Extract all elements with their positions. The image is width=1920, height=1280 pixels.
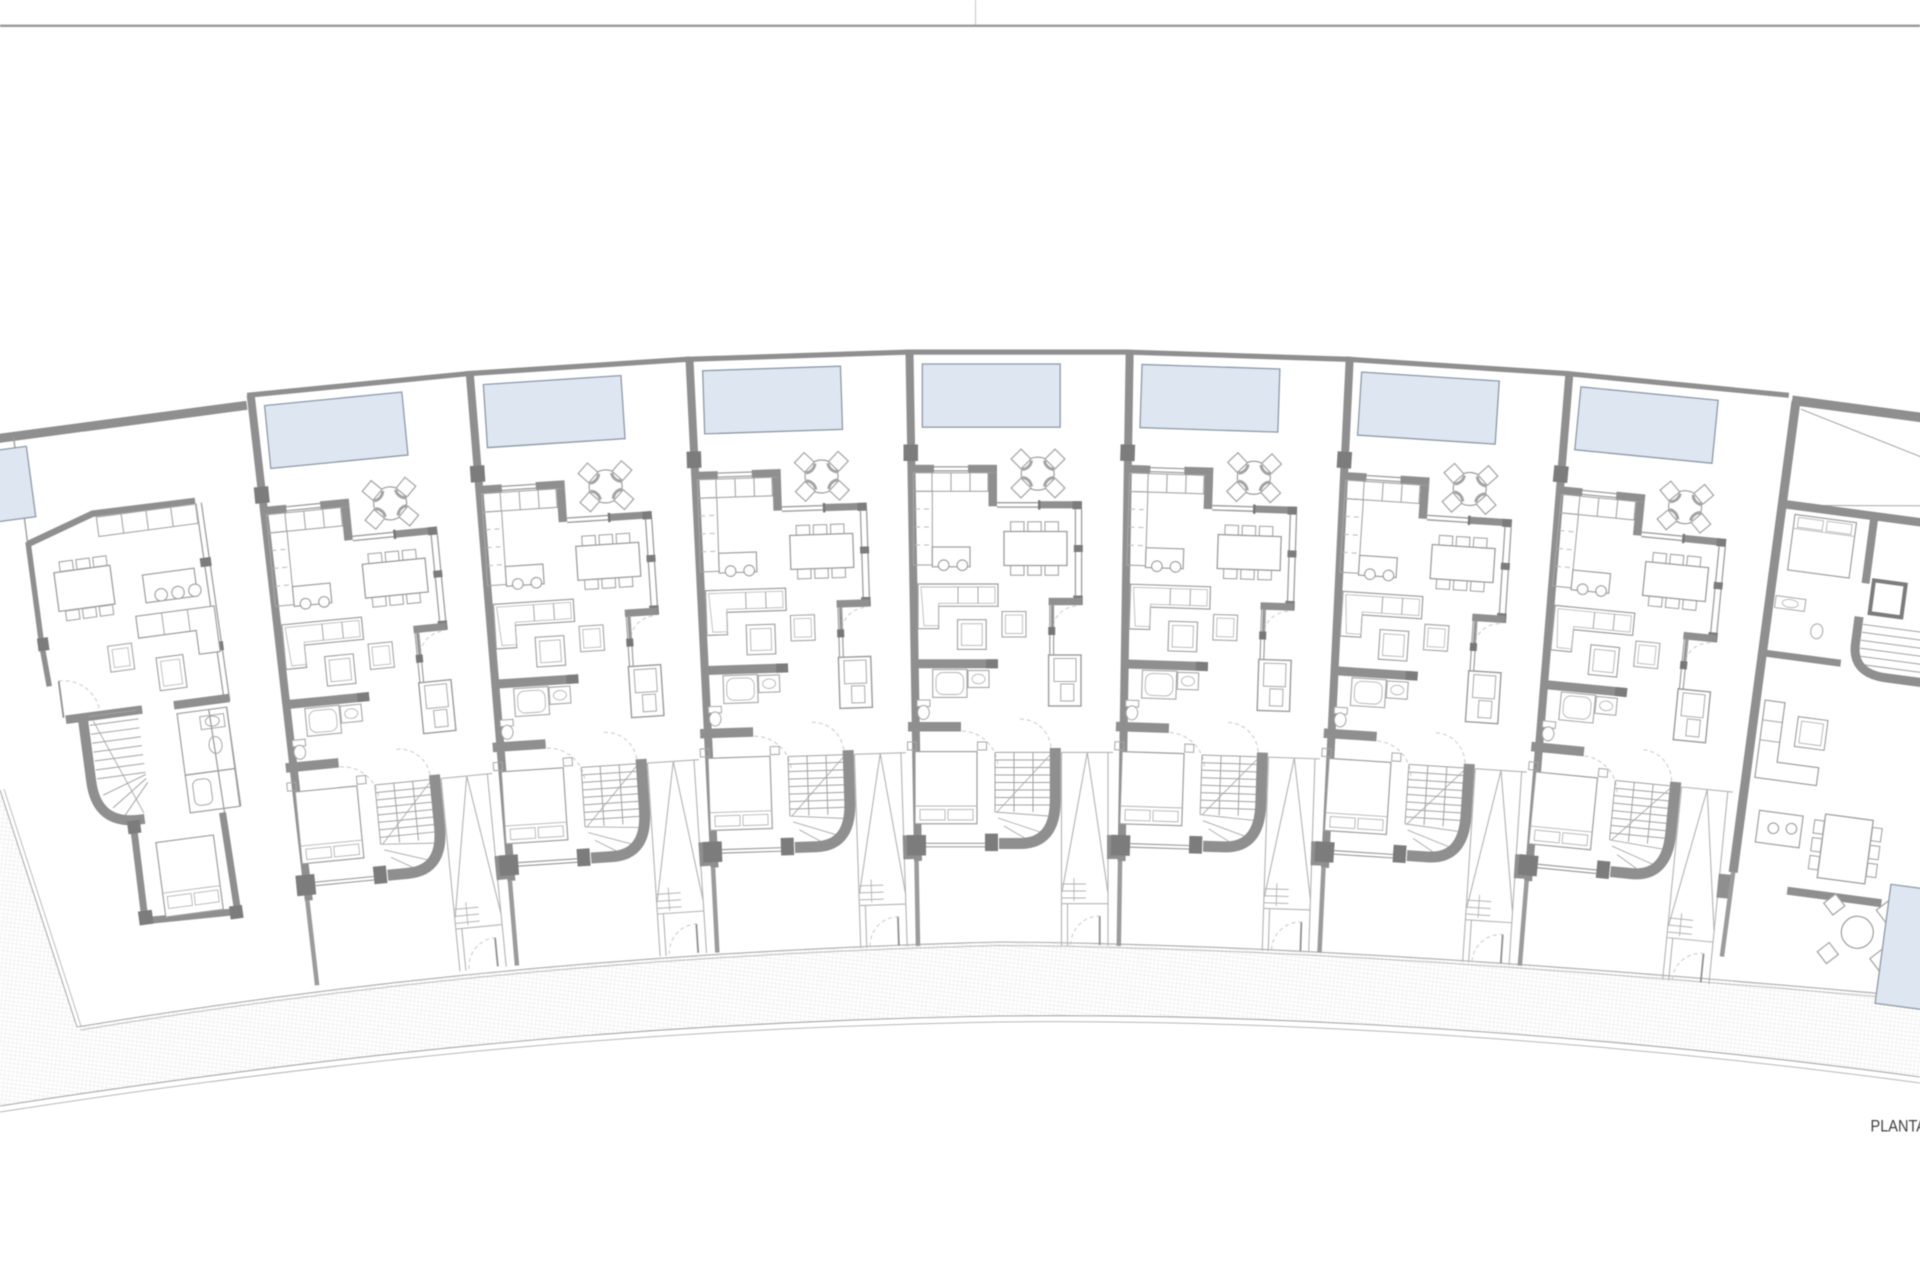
svg-text:PLANTA BAJA: PLANTA BAJA (1871, 1117, 1920, 1136)
